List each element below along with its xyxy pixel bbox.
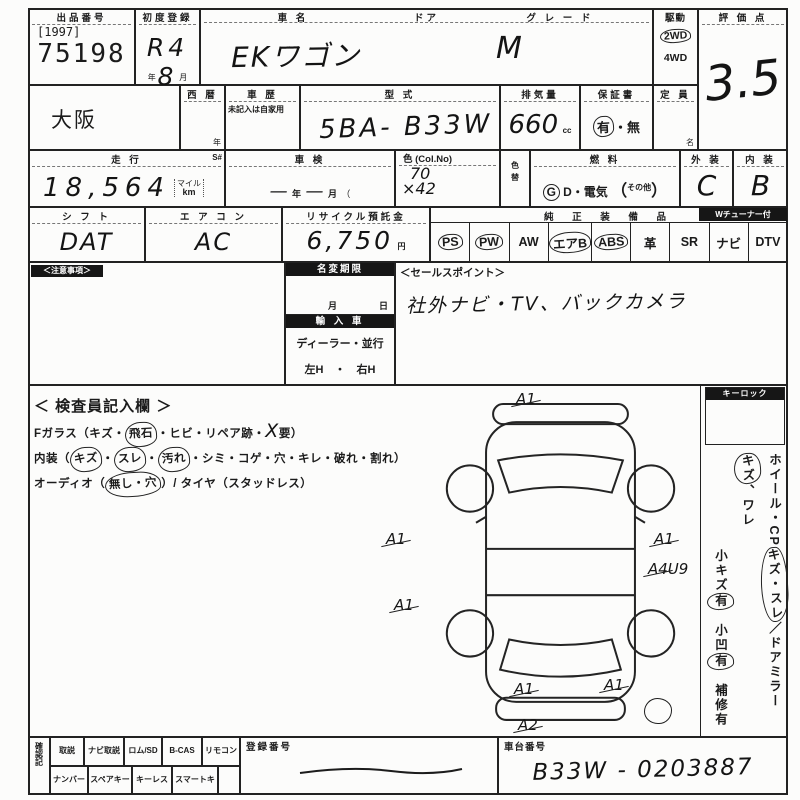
aircon-value: AC <box>146 228 281 256</box>
door-label: ドア <box>382 9 471 22</box>
spare-key-label: スペアキー <box>89 767 131 793</box>
import-type: ディーラー・並行 <box>286 335 394 351</box>
month-unit: 月 <box>179 72 187 83</box>
fuel-options: G D・電気 （その他） <box>531 177 679 201</box>
equipment-cell: 純 正 装 備 品 Wチューナー付 PS PW AW エアB ABS 革 SR … <box>430 207 788 262</box>
equipment-header: 純 正 装 備 品 Wチューナー付 <box>431 208 787 223</box>
inspection-dash2: — <box>305 181 323 202</box>
right-column: キーロック ホイール・CPキズ・スレ／ドアミラーキズ、ワレ 小キズ有 小凹有 補… <box>700 385 788 737</box>
inspection-value: — 年 — 月 （ <box>226 181 394 202</box>
displacement-value: 660 <box>509 110 559 140</box>
fuel-other: その他 <box>627 183 651 192</box>
drivetrain-label: 駆動 <box>654 9 697 24</box>
chassis-number-label: 車台番号 <box>499 738 787 753</box>
displacement-unit: cc <box>563 126 572 135</box>
equipment-ps: PS <box>431 223 469 261</box>
aircon-cell: エ ア コ ン AC <box>145 207 282 262</box>
import-label: 輸 入 車 <box>286 315 394 328</box>
namechange-month: 月 <box>328 299 337 312</box>
bcas-cell: B-CAS <box>162 737 202 766</box>
equipment-aw: AW <box>509 223 548 261</box>
history-cell: 車 歴 未記入は自家用 <box>225 85 300 150</box>
equipment-leather: 革 <box>630 223 669 261</box>
seireki-unit: 年 <box>213 137 221 148</box>
exterior-grade-cell: 外 装 C <box>680 150 733 207</box>
recycle-fee-label: リサイクル預託金 <box>286 208 426 224</box>
plate-cell: ナンバー <box>50 766 88 795</box>
fuel-rest: D・電気 <box>563 185 608 199</box>
interior-grade-cell: 内 装 B <box>733 150 788 207</box>
chassis-number-value: B33W - 0203887 <box>499 753 788 787</box>
notes-label: ＜注意事項＞ <box>31 265 103 277</box>
recycle-fee-unit: 円 <box>398 242 406 251</box>
equipment-dtv: DTV <box>748 223 787 261</box>
inspector-title: ＜ 検査員記入欄 ＞ <box>34 395 414 416</box>
grade-value: M <box>496 31 522 66</box>
displacement-cell: 排気量 660 cc <box>500 85 580 150</box>
warranty-label: 保証書 <box>584 86 649 102</box>
sales-point-text: 社外ナビ・TV、バックカメラ <box>406 285 787 319</box>
car-name-label: 車 名 <box>204 9 382 22</box>
history-note: 未記入は自家用 <box>226 102 299 115</box>
displacement-label: 排気量 <box>504 86 576 102</box>
inspection-cell: 車 検 — 年 — 月 （ <box>225 150 395 207</box>
accessories-side-cell: 確認記 <box>28 737 50 795</box>
rom-sd-cell: ロム/SD <box>124 737 162 766</box>
registration-number-strikethrough <box>296 764 466 778</box>
inspector-line-fglass: Fガラス（キズ・飛石・ヒビ・リペア跡・X要） <box>34 420 414 447</box>
damage-mark-rear-right: A1 <box>604 676 624 694</box>
shift-value: DAT <box>29 228 144 256</box>
car-name-value: EKワゴン <box>231 34 362 76</box>
capacity-cell: 定 員 名 <box>653 85 698 150</box>
import-handle: 左H ・ 右H <box>286 361 394 377</box>
warranty-no: 無 <box>627 120 640 135</box>
inspection-month-unit: 月 <box>328 189 337 199</box>
inspector-line-audio: オーディオ（無し・穴）/ タイヤ（スタッドレス） <box>34 472 414 497</box>
fuel-paren-left: （ <box>611 183 627 200</box>
lot-number-value: 75198 <box>29 39 134 69</box>
warranty-cell: 保証書 有・無 <box>580 85 653 150</box>
shift-label: シ フ ト <box>32 208 141 224</box>
warranty-sep: ・ <box>614 120 627 135</box>
seireki-cell: 西 暦 年 <box>180 85 225 150</box>
right-column-notes: ホイール・CPキズ・スレ／ドアミラーキズ、ワレ 小キズ有 小凹有 補修有 <box>707 453 788 731</box>
inspection-paren: （ <box>341 189 350 199</box>
odometer-s-label: S# <box>212 153 222 162</box>
equipment-badges: PS PW AW エアB ABS 革 SR ナビ DTV <box>431 223 787 261</box>
accessories-side-label: 確認記 <box>34 742 45 792</box>
color-value-2: ×42 <box>402 181 499 196</box>
mileage-cell: 走 行 S# 18,564 マイル km <box>28 150 225 207</box>
recycle-fee-value: 6,750 <box>306 226 393 255</box>
inspection-dash1: — <box>270 181 288 202</box>
keyless-cell: キーレス <box>132 766 172 795</box>
model-code-value: 5BA- B33W <box>319 109 500 145</box>
fuel-gasoline: G <box>543 184 560 201</box>
remote-label: リモコン <box>203 738 239 764</box>
capacity-label: 定 員 <box>657 86 694 102</box>
damage-mark-rear-bumper: A2 <box>518 716 538 734</box>
aircon-label: エ ア コ ン <box>149 208 278 224</box>
tuner-note: Wチューナー付 <box>699 208 787 221</box>
color-change-label: 色替 <box>510 161 521 197</box>
warranty-options: 有・無 <box>581 116 652 137</box>
exterior-grade-label: 外 装 <box>684 151 729 167</box>
manual-cell: 取説 <box>50 737 84 766</box>
keyless-label: キーレス <box>133 767 171 793</box>
first-registration-cell: 初度登録 R4 8 年 月 <box>135 8 200 85</box>
shift-cell: シ フ ト DAT <box>28 207 145 262</box>
keylock-cell: キーロック <box>705 387 785 445</box>
fuel-label: 燃 料 <box>534 151 676 167</box>
spare-key-cell: スペアキー <box>88 766 132 795</box>
inspection-year-unit: 年 <box>292 189 301 199</box>
drivetrain-2wd: 2WD <box>654 29 697 43</box>
score-value: 3.5 <box>696 49 789 114</box>
damage-mark-left-front: A1 <box>386 530 406 548</box>
inspection-label: 車 検 <box>229 151 391 167</box>
name-grade-cell: 車 名 ドア グ レ ー ド EKワゴン M <box>200 8 653 85</box>
seireki-label: 西 暦 <box>184 86 221 102</box>
drivetrain-cell: 駆動 2WD 4WD <box>653 8 698 85</box>
exterior-grade-value: C <box>681 169 732 202</box>
equipment-pw: PW <box>469 223 508 261</box>
damage-mark-roof-front: A1 <box>516 390 536 408</box>
color-cell: 色 (Col.No) 70 ×42 <box>395 150 500 207</box>
mileage-value: 18,564 <box>43 173 170 203</box>
interior-grade-label: 内 装 <box>737 151 784 167</box>
model-code-cell: 型 式 5BA- B33W <box>300 85 500 150</box>
wheel-mirror-line: ホイール・CPキズ・スレ／ドアミラーキズ、ワレ <box>734 453 788 731</box>
empty-accessory-cell <box>218 766 240 795</box>
capacity-unit: 名 <box>686 137 694 148</box>
score-label: 評 価 点 <box>702 9 784 25</box>
fuel-cell: 燃 料 G D・電気 （その他） <box>530 150 680 207</box>
fuel-paren-right: ） <box>651 183 667 200</box>
first-registration-label: 初度登録 <box>139 9 196 25</box>
lot-number-cell: 出品番号 [1997] 75198 <box>28 8 135 85</box>
history-label: 車 歴 <box>229 86 296 102</box>
name-grade-header: 車 名 ドア グ レ ー ド <box>204 9 649 23</box>
damage-mark-right-front: A1 <box>654 530 674 548</box>
recycle-fee-cell: リサイクル預託金 6,750 円 <box>282 207 430 262</box>
recycle-fee-wrap: 6,750 円 <box>283 226 429 255</box>
navi-manual-cell: ナビ取説 <box>84 737 124 766</box>
displacement-value-wrap: 660 cc <box>501 110 579 140</box>
score-cell: 評 価 点 3.5 <box>698 8 788 150</box>
grade-label: グ レ ー ド <box>471 9 649 22</box>
equipment-abs: ABS <box>591 223 630 261</box>
interior-grade-value: B <box>734 169 787 202</box>
damage-mark-right-middle: A4U9 <box>648 560 688 578</box>
year-unit: 年 <box>148 72 156 83</box>
smart-key-cell: スマートキー <box>172 766 218 795</box>
mileage-label: 走 行 <box>32 151 221 167</box>
model-code-label: 型 式 <box>304 86 496 102</box>
auction-sheet: 出品番号 [1997] 75198 初度登録 R4 8 年 月 車 名 ドア グ… <box>0 0 800 800</box>
manual-label: 取説 <box>51 738 83 764</box>
smart-key-label: スマートキー <box>173 767 217 800</box>
lot-year-bracket: [1997] <box>29 25 134 39</box>
inspector-notes: ＜ 検査員記入欄 ＞ Fガラス（キズ・飛石・ヒビ・リペア跡・X要） 内装（キズ・… <box>34 395 414 497</box>
hand-circle-mark <box>644 698 672 724</box>
keylock-label: キーロック <box>706 388 784 400</box>
color-change-cell: 色替 <box>500 150 530 207</box>
registration-number-label: 登録番号 <box>241 738 497 753</box>
mileage-value-wrap: 18,564 マイル km <box>43 173 224 203</box>
inspector-line-interior: 内装（キズ・スレ・汚れ・シミ・コゲ・穴・キレ・破れ・割れ） <box>34 447 414 472</box>
sales-point-label: ＜セールスポイント＞ <box>396 263 787 280</box>
mileage-unit-stack: マイル km <box>174 179 204 197</box>
warranty-yes: 有 <box>592 115 614 137</box>
plate-label: ナンバー <box>51 767 87 793</box>
region-cell: 大阪 <box>28 85 180 150</box>
namechange-label: 名変期限 <box>286 263 394 276</box>
namechange-date: 月 日 <box>286 276 394 315</box>
navi-manual-label: ナビ取説 <box>85 738 123 764</box>
small-damage-line: 小キズ有 小凹有 補修有 <box>707 453 734 731</box>
namechange-import-cell: 名変期限 月 日 輸 入 車 ディーラー・並行 左H ・ 右H <box>285 262 395 385</box>
registration-number-cell: 登録番号 <box>240 737 498 795</box>
bcas-label: B-CAS <box>163 738 201 764</box>
first-registration-units: 年 月 <box>136 72 199 83</box>
chassis-number-cell: 車台番号 B33W - 0203887 <box>498 737 788 795</box>
damage-mark-left-rear: A1 <box>394 596 414 614</box>
equipment-sunroof: SR <box>669 223 708 261</box>
damage-mark-rear-center: A1 <box>514 680 534 698</box>
namechange-day: 日 <box>379 299 388 312</box>
fglass-x-mark: X <box>265 420 279 442</box>
notes-cell: ＜注意事項＞ <box>28 262 285 385</box>
remote-cell: リモコン <box>202 737 240 766</box>
equipment-airbag: エアB <box>548 223 591 261</box>
equipment-navi: ナビ <box>709 223 748 261</box>
sales-point-cell: ＜セールスポイント＞ 社外ナビ・TV、バックカメラ <box>395 262 788 385</box>
drivetrain-4wd: 4WD <box>654 52 697 64</box>
lot-number-label: 出品番号 <box>32 9 131 25</box>
rom-sd-label: ロム/SD <box>125 738 161 764</box>
mileage-unit-km: km <box>177 188 201 197</box>
region-value: 大阪 <box>51 104 179 134</box>
